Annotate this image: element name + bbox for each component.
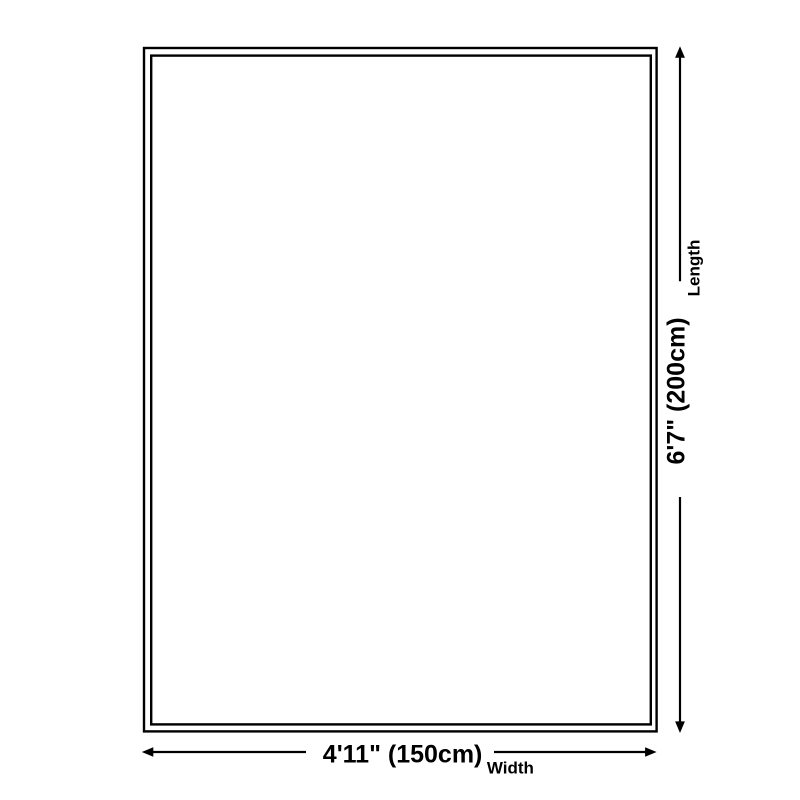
svg-text:Width: Width [487, 759, 534, 778]
svg-text:4'11" (150cm): 4'11" (150cm) [323, 741, 483, 769]
svg-text:Length: Length [685, 240, 704, 297]
svg-text:6'7" (200cm): 6'7" (200cm) [663, 317, 691, 464]
